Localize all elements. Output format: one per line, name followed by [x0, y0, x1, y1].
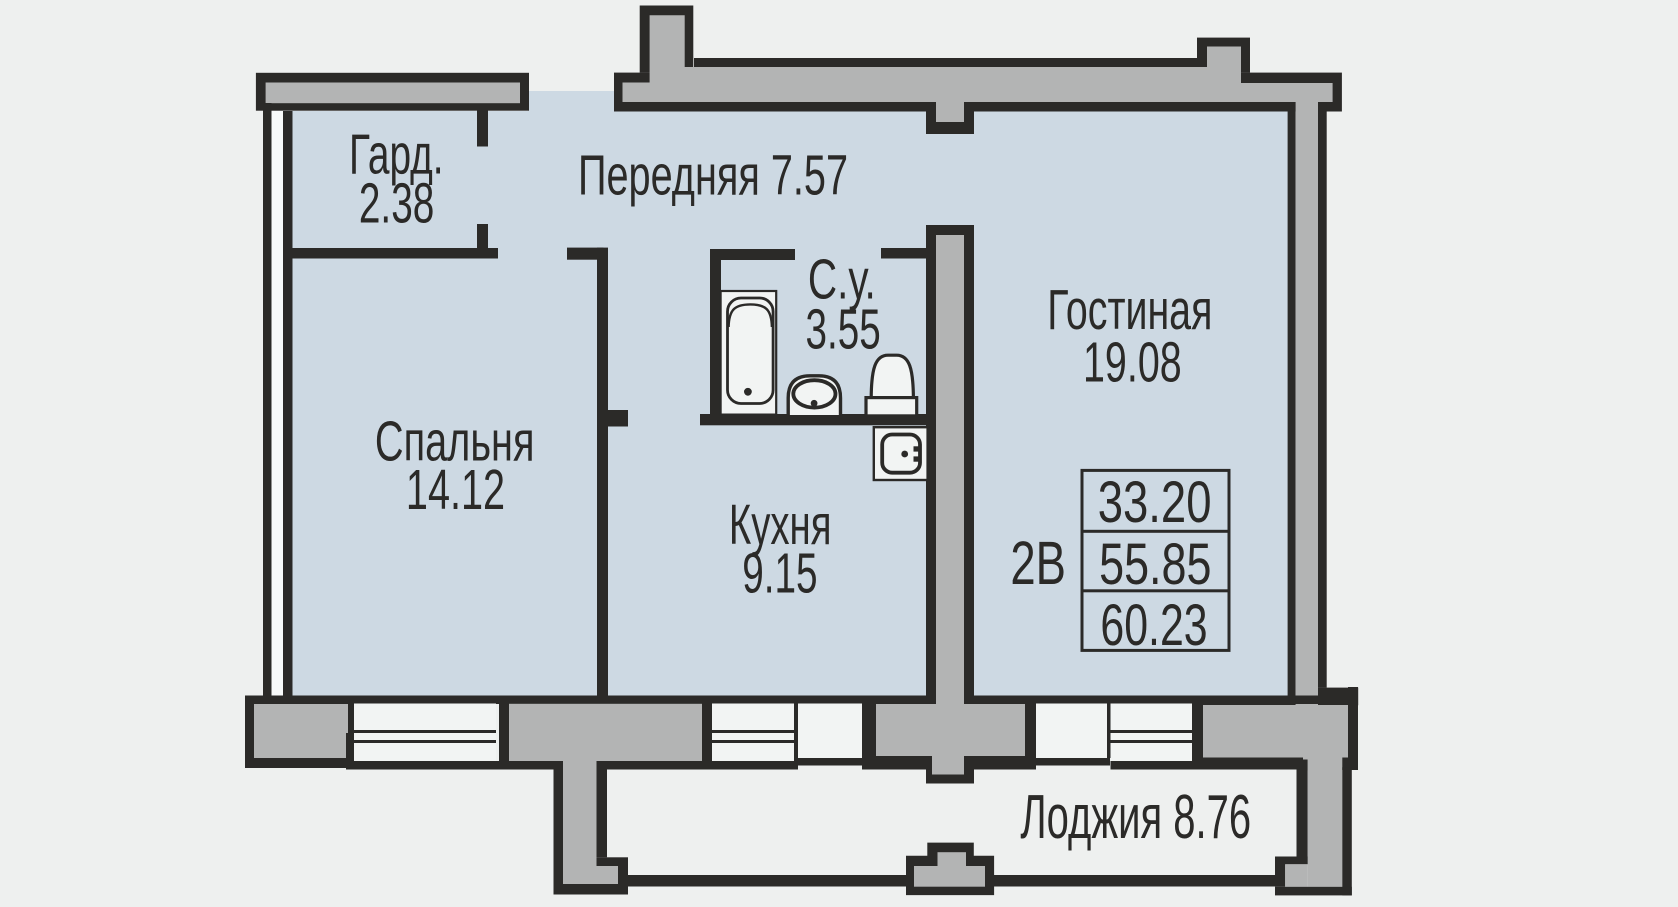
svg-text:Передняя 7.57: Передняя 7.57 [578, 143, 848, 207]
svg-text:2.38: 2.38 [359, 172, 434, 236]
svg-text:14.12: 14.12 [406, 458, 505, 522]
svg-text:55.85: 55.85 [1099, 532, 1211, 597]
svg-text:60.23: 60.23 [1100, 593, 1207, 658]
svg-text:2В: 2В [1010, 529, 1066, 597]
svg-text:9.15: 9.15 [742, 542, 817, 606]
svg-text:33.20: 33.20 [1098, 470, 1212, 535]
svg-text:19.08: 19.08 [1083, 331, 1182, 395]
svg-text:3.55: 3.55 [806, 297, 881, 361]
svg-text:Лоджия 8.76: Лоджия 8.76 [1020, 783, 1251, 852]
